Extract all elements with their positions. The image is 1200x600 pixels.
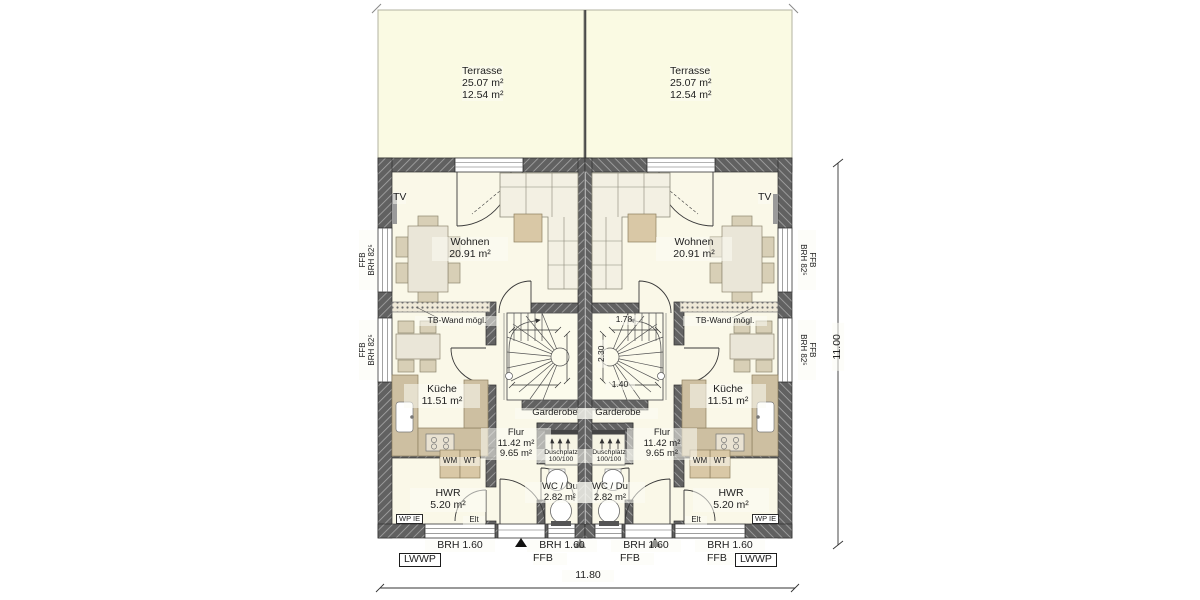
- elt-label-left: Elt: [463, 516, 485, 525]
- room-label-wohnen-left: Wohnen20.91 m²: [432, 237, 508, 261]
- window-note-right-lower: FFBBRH 82⁵: [798, 320, 816, 380]
- wt-label-left: WT: [460, 457, 480, 466]
- tb-wand-label-left: TB-Wand mögl.: [415, 316, 499, 326]
- terrace-label-right: Terrasse25.07 m²12.54 m²: [670, 66, 711, 101]
- tv-label-left: TV: [393, 192, 406, 204]
- heat-pump-indoor-label-right: WP IE: [752, 514, 779, 524]
- sill-note-3: BRH 1.60: [611, 540, 681, 552]
- dimension-stair-width: 1.78: [609, 315, 639, 325]
- room-label-flur-right: Flur11.42 m²9.65 m²: [627, 428, 697, 460]
- room-label-garderobe-right: Garderobe: [578, 408, 658, 419]
- dimension-total-height: 11.00: [832, 323, 844, 371]
- heat-pump-indoor-label-left: WP IE: [396, 514, 423, 524]
- sill-note-2: BRH 1.60: [527, 540, 597, 552]
- wm-label-left: WM: [440, 457, 460, 466]
- floor-plan-drawing: [0, 0, 1200, 600]
- heat-pump-outdoor-label-left: LWWP: [399, 553, 441, 567]
- shower-label-right: Duschplatz100/100: [584, 449, 634, 463]
- window-note-right-upper: FFBBRH 82⁵: [798, 230, 816, 290]
- dimension-total-width: 11.80: [562, 570, 614, 582]
- wm-label-right: WM: [690, 457, 710, 466]
- ffb-note-2: FFB: [620, 553, 654, 565]
- wt-label-right: WT: [710, 457, 730, 466]
- terrace-label-left: Terrasse25.07 m²12.54 m²: [462, 66, 503, 101]
- window-note-left-upper: FFBBRH 82⁵: [359, 230, 377, 290]
- elt-label-right: Elt: [685, 516, 707, 525]
- heat-pump-outdoor-label-right: LWWP: [735, 553, 777, 567]
- room-label-wohnen-right: Wohnen20.91 m²: [656, 237, 732, 261]
- floor-plan-page: Terrasse25.07 m²12.54 m² Terrasse25.07 m…: [0, 0, 1200, 600]
- room-label-hwr-left: HWR5.20 m²: [410, 488, 486, 512]
- tv-label-right: TV: [758, 192, 771, 204]
- dimension-stair-run: 1.40: [605, 380, 635, 390]
- room-label-wc-right: WC / Du2.82 m²: [575, 482, 645, 503]
- shower-label-left: Duschplatz100/100: [536, 449, 586, 463]
- sill-note-4: BRH 1.60: [695, 540, 765, 552]
- window-note-left-lower: FFBBRH 82⁵: [359, 320, 377, 380]
- dimension-stair-depth: 2.30: [597, 340, 607, 368]
- sill-note-1: BRH 1.60: [425, 540, 495, 552]
- ffb-note-1: FFB: [533, 553, 567, 565]
- room-label-kueche-left: Küche11.51 m²: [404, 384, 480, 408]
- room-label-kueche-right: Küche11.51 m²: [690, 384, 766, 408]
- room-label-hwr-right: HWR5.20 m²: [693, 488, 769, 512]
- tb-wand-label-right: TB-Wand mögl.: [683, 316, 767, 326]
